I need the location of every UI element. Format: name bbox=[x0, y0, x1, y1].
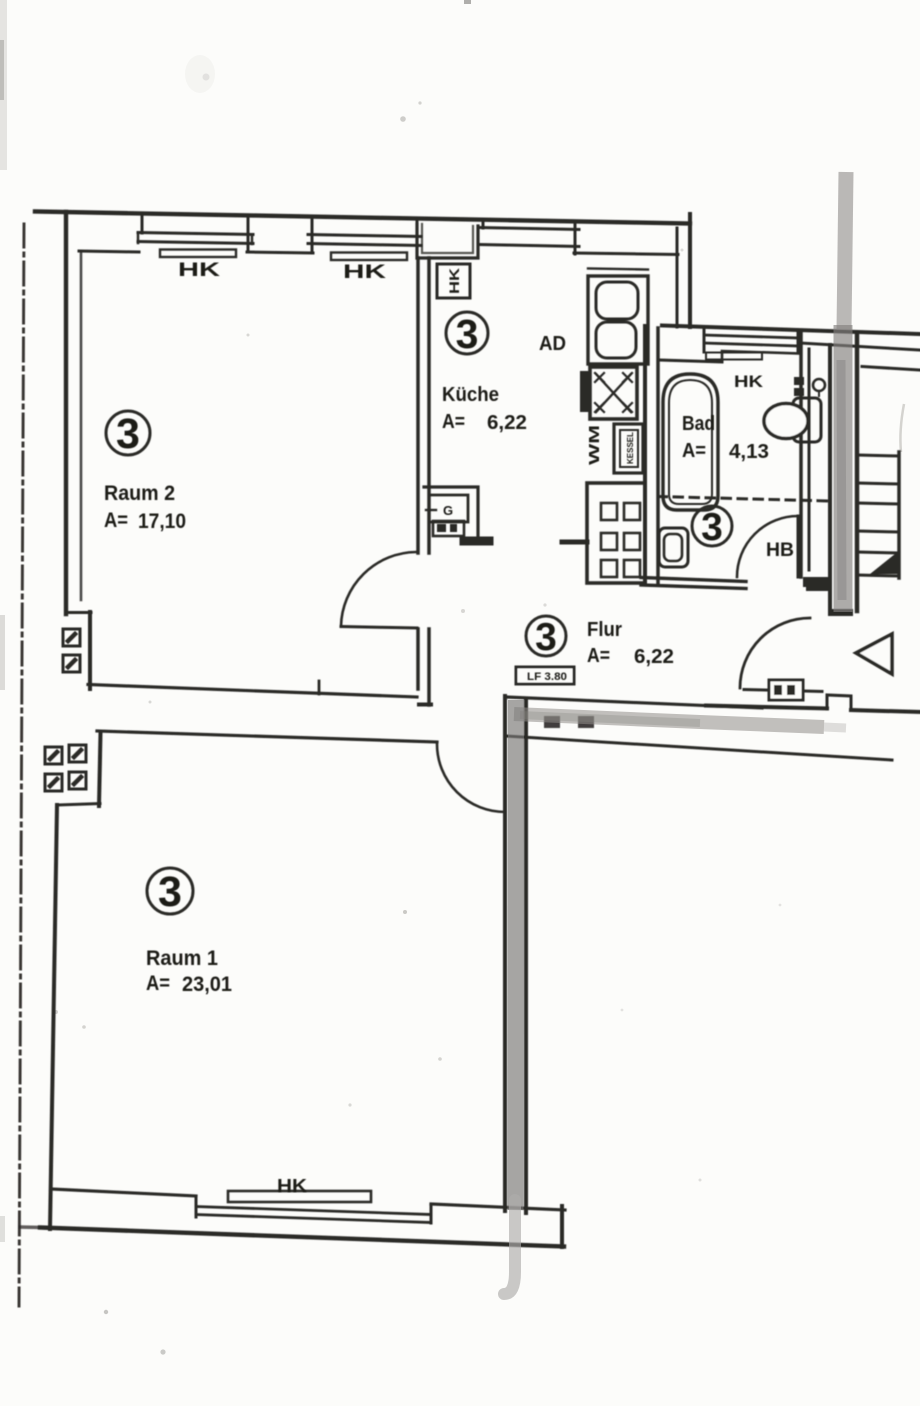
svg-text:WM: WM bbox=[586, 425, 603, 465]
svg-text:3: 3 bbox=[456, 311, 479, 357]
svg-text:17,10: 17,10 bbox=[138, 510, 186, 533]
svg-text:Raum 2: Raum 2 bbox=[104, 482, 175, 505]
svg-text:HK: HK bbox=[343, 262, 386, 283]
svg-text:G: G bbox=[443, 503, 453, 518]
svg-text:3: 3 bbox=[701, 506, 723, 549]
svg-text:Küche: Küche bbox=[442, 384, 499, 406]
svg-text:KESSEL: KESSEL bbox=[626, 432, 635, 464]
svg-text:A=: A= bbox=[682, 440, 706, 462]
svg-text:HK: HK bbox=[178, 260, 220, 281]
svg-text:A=: A= bbox=[104, 509, 128, 532]
svg-text:Bad: Bad bbox=[682, 413, 715, 435]
svg-text:3: 3 bbox=[116, 410, 140, 458]
svg-text:AD: AD bbox=[539, 333, 566, 355]
svg-text:HB: HB bbox=[766, 540, 794, 561]
svg-text:HK: HK bbox=[734, 372, 764, 391]
svg-text:A=: A= bbox=[587, 645, 610, 667]
svg-text:4,13: 4,13 bbox=[729, 441, 769, 463]
svg-text:A=: A= bbox=[146, 972, 170, 995]
svg-text:3: 3 bbox=[158, 868, 182, 916]
svg-text:A=: A= bbox=[442, 411, 465, 433]
svg-text:HK: HK bbox=[277, 1176, 307, 1196]
svg-text:6,22: 6,22 bbox=[487, 412, 527, 434]
svg-text:Flur: Flur bbox=[587, 619, 622, 641]
svg-text:LF 3.80: LF 3.80 bbox=[527, 671, 567, 683]
svg-text:HK: HK bbox=[446, 268, 462, 294]
svg-text:23,01: 23,01 bbox=[182, 973, 232, 996]
svg-text:6,22: 6,22 bbox=[634, 646, 674, 668]
svg-text:Raum 1: Raum 1 bbox=[146, 947, 218, 970]
svg-text:3: 3 bbox=[535, 616, 557, 659]
